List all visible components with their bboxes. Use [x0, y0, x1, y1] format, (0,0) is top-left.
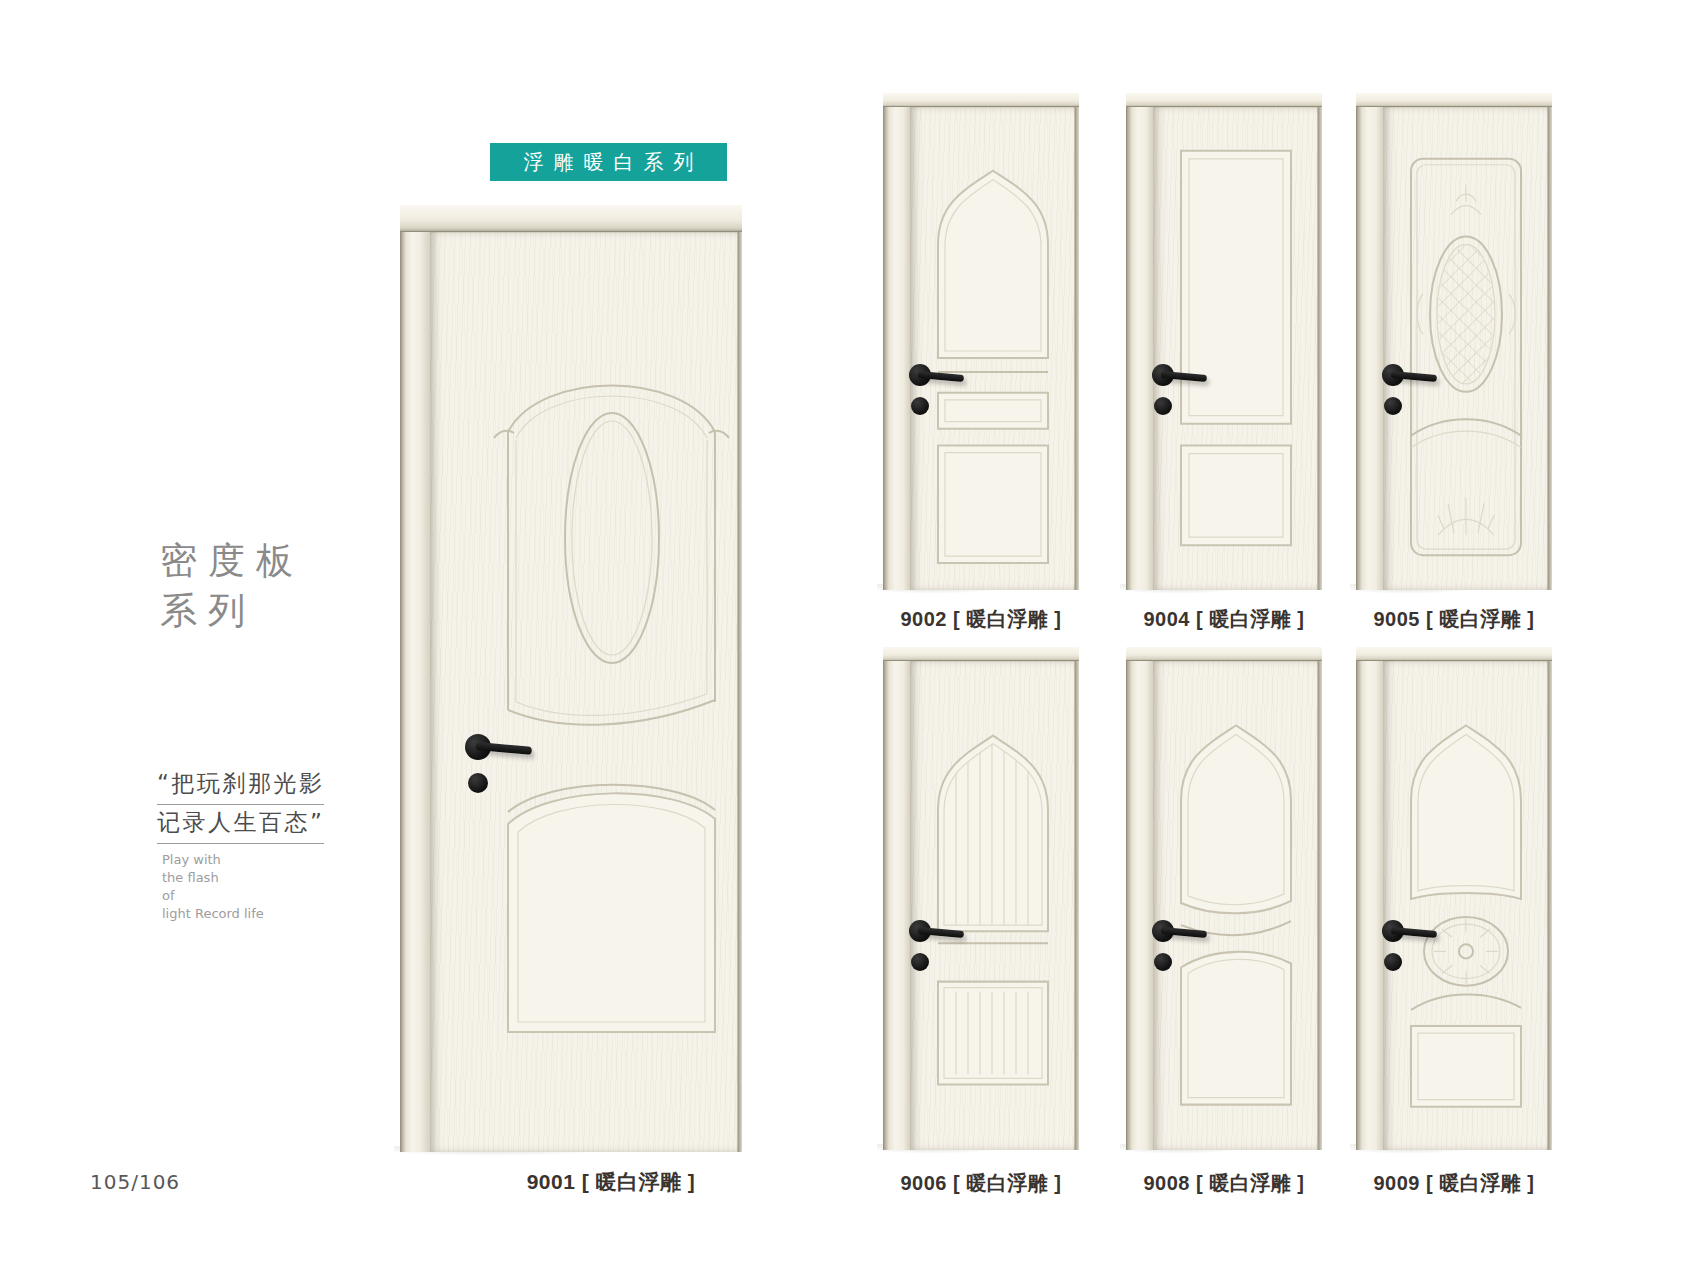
door-leaf	[910, 107, 1075, 590]
door-frame-right-edge	[1318, 661, 1322, 1150]
door-frame-jamb	[1126, 107, 1153, 590]
page-number: 105/106	[90, 1170, 180, 1194]
category-line-2: 系列	[160, 586, 304, 636]
door-frame-right-edge	[1548, 107, 1552, 590]
door-label-9009: 9009 [ 暖白浮雕 ]	[1356, 1170, 1552, 1197]
lock-cylinder	[911, 397, 929, 415]
door-frame-lintel	[1356, 647, 1552, 661]
door-frame-lintel	[1126, 93, 1322, 107]
category-title: 密度板 系列	[160, 536, 304, 636]
door-panel-design	[430, 232, 738, 1152]
door-9002	[883, 93, 1079, 590]
door-label-9001: 9001 [ 暖白浮雕 ]	[455, 1168, 767, 1196]
door-frame-lintel	[883, 93, 1079, 107]
door-frame-right-edge	[1548, 661, 1552, 1150]
door-frame-right-edge	[1075, 107, 1079, 590]
lock-cylinder	[1154, 397, 1172, 415]
door-frame-right-edge	[1075, 661, 1079, 1150]
quote-line-1: “把玩刹那光影	[157, 768, 324, 805]
door-9004	[1126, 93, 1322, 590]
door-frame-right-edge	[1318, 107, 1322, 590]
door-panel-design	[1153, 661, 1318, 1150]
door-frame-lintel	[1126, 647, 1322, 661]
lock-cylinder	[1384, 397, 1402, 415]
door-label-9002: 9002 [ 暖白浮雕 ]	[883, 606, 1079, 633]
door-frame-lintel	[400, 205, 742, 232]
door-label-9008: 9008 [ 暖白浮雕 ]	[1126, 1170, 1322, 1197]
door-9006	[883, 647, 1079, 1150]
door-frame-jamb	[883, 661, 910, 1150]
door-frame-right-edge	[738, 232, 742, 1152]
catalog-page: 浮雕暖白系列 密度板 系列 “把玩刹那光影 记录人生百态” Play with …	[0, 0, 1700, 1275]
tagline-line-1: Play with	[162, 851, 264, 869]
tagline-line-2: the flash	[162, 869, 264, 887]
lock-cylinder	[911, 953, 929, 971]
door-9005	[1356, 93, 1552, 590]
tagline-line-3: of	[162, 887, 264, 905]
door-9001	[400, 205, 742, 1152]
door-frame-lintel	[883, 647, 1079, 661]
lock-cylinder	[1384, 953, 1402, 971]
door-label-9005: 9005 [ 暖白浮雕 ]	[1356, 606, 1552, 633]
lock-cylinder	[1154, 953, 1172, 971]
door-frame-lintel	[1356, 93, 1552, 107]
category-line-1: 密度板	[160, 536, 304, 586]
door-leaf	[1383, 107, 1548, 590]
door-panel-design	[1383, 107, 1548, 590]
door-panel-design	[1153, 107, 1318, 590]
door-frame-jamb	[1356, 661, 1383, 1150]
door-frame-jamb	[400, 232, 430, 1152]
door-frame-jamb	[1356, 107, 1383, 590]
quote-block: “把玩刹那光影 记录人生百态”	[157, 768, 324, 846]
lock-cylinder	[468, 773, 488, 793]
tagline: Play with the flash of light Record life	[162, 851, 264, 923]
door-frame-jamb	[883, 107, 910, 590]
door-leaf	[1153, 107, 1318, 590]
tagline-line-4: light Record life	[162, 905, 264, 923]
door-panel-design	[910, 661, 1075, 1150]
series-banner-text: 浮雕暖白系列	[514, 149, 704, 176]
door-leaf	[430, 232, 738, 1152]
series-banner: 浮雕暖白系列	[490, 143, 727, 181]
door-panel-design	[910, 107, 1075, 590]
door-label-9004: 9004 [ 暖白浮雕 ]	[1126, 606, 1322, 633]
door-leaf	[910, 661, 1075, 1150]
quote-line-2: 记录人生百态”	[157, 807, 324, 844]
door-panel-design	[1383, 661, 1548, 1150]
door-frame-jamb	[1126, 661, 1153, 1150]
door-label-9006: 9006 [ 暖白浮雕 ]	[883, 1170, 1079, 1197]
door-leaf	[1153, 661, 1318, 1150]
door-leaf	[1383, 661, 1548, 1150]
door-9009	[1356, 647, 1552, 1150]
door-9008	[1126, 647, 1322, 1150]
